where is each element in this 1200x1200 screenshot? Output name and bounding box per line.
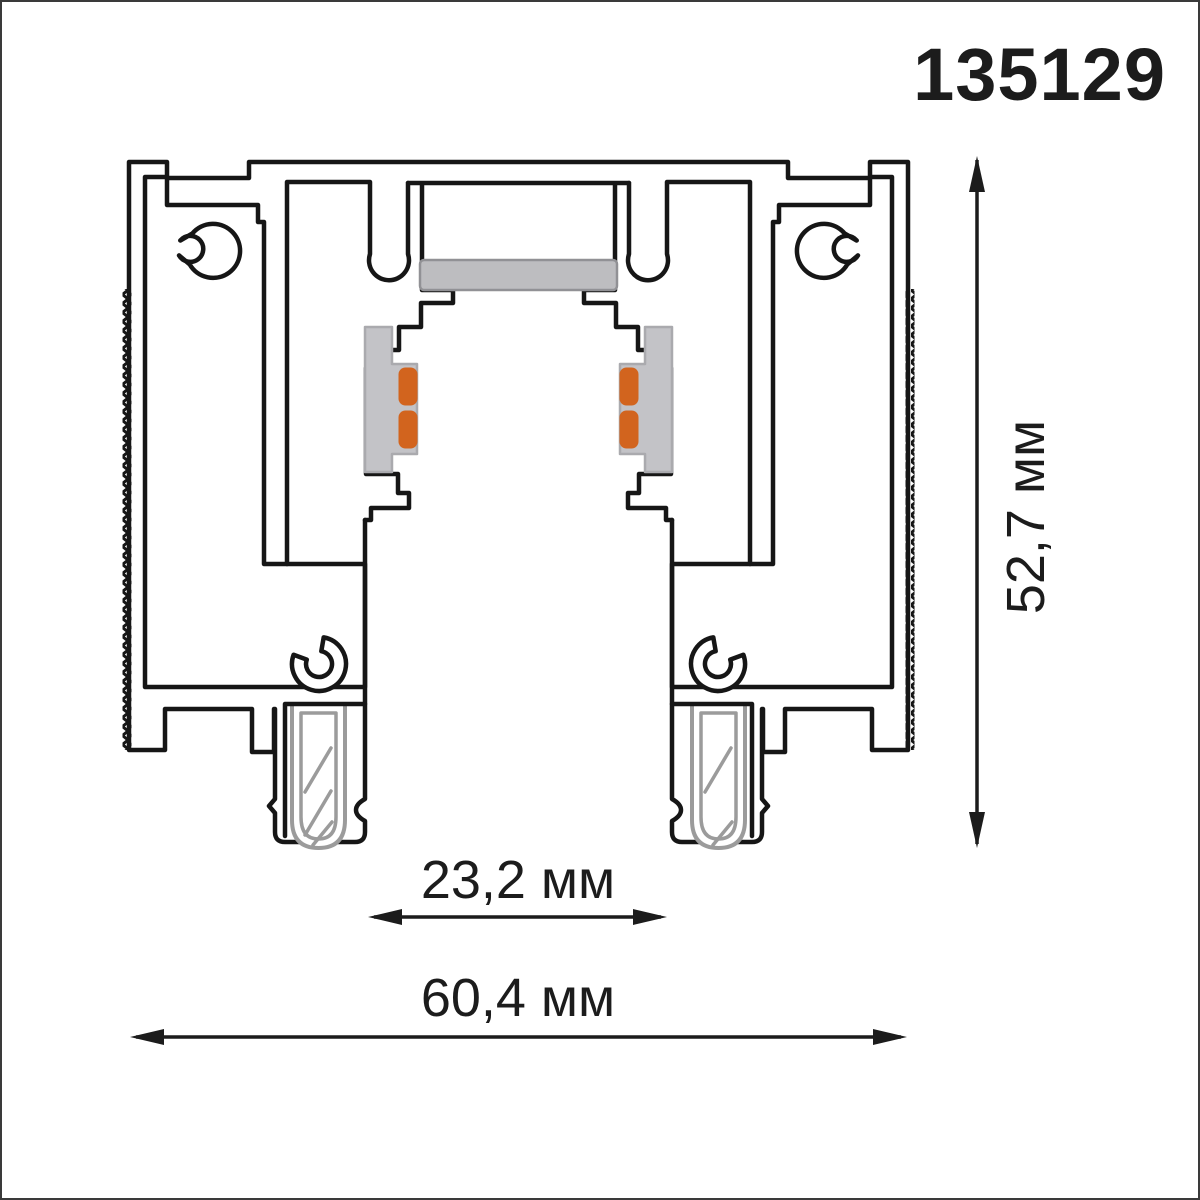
screw-boss-bottom-right [691, 637, 745, 691]
arrowhead-left-icon [368, 909, 402, 925]
overall-width-dimension-label: 60,4 мм [421, 968, 615, 1028]
dimension-slot-width: 23,2 мм [368, 850, 667, 925]
slot-width-dimension-label: 23,2 мм [421, 850, 615, 910]
copper-contact [620, 368, 639, 406]
arrowhead-right-icon [633, 909, 667, 925]
central-chamber-right-wall [667, 182, 750, 564]
keyhole-right [628, 183, 668, 280]
copper-contact [620, 411, 639, 449]
arrowhead-up-icon [969, 156, 985, 192]
screw-boss-top-right [797, 224, 858, 278]
copper-contact [399, 411, 418, 449]
dimension-overall-width: 60,4 мм [130, 968, 907, 1045]
copper-contact [399, 368, 418, 406]
profile-drawing-canvas: 52,7 мм 23,2 мм 60,4 мм 135129 [2, 2, 1200, 1200]
arrowhead-left-icon [130, 1029, 164, 1045]
screw-boss-bottom-left [292, 637, 346, 691]
dimension-height: 52,7 мм [969, 156, 1056, 848]
copper-contacts [399, 368, 639, 449]
spring-clip-right-inner [701, 713, 736, 839]
arrowhead-right-icon [873, 1029, 907, 1045]
arrowhead-down-icon [969, 812, 985, 848]
drawing-page: 52,7 мм 23,2 мм 60,4 мм 135129 [0, 0, 1200, 1200]
screw-boss-top-left [179, 224, 240, 278]
magnet-strip [420, 260, 617, 290]
height-dimension-label: 52,7 мм [996, 420, 1056, 614]
keyhole-left [369, 183, 409, 280]
central-chamber-left-wall [287, 182, 370, 564]
spring-clip-left-inner [301, 713, 336, 839]
part-number: 135129 [913, 33, 1166, 116]
central-cavity-steps [365, 183, 672, 520]
